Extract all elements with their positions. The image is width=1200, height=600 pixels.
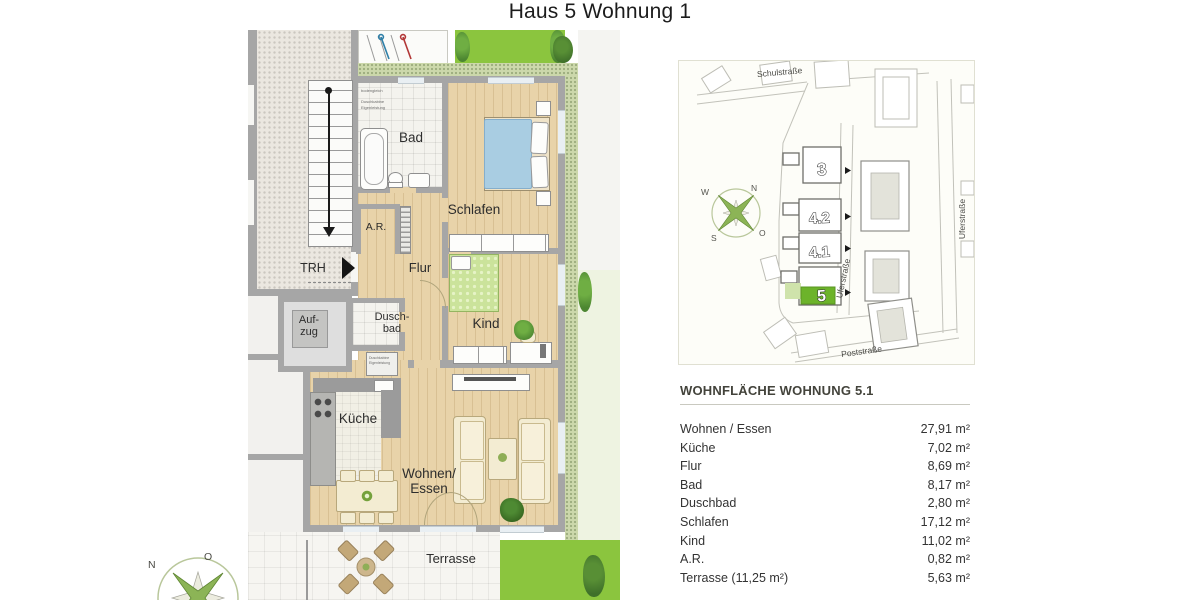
- label-line: Auf-: [299, 314, 319, 326]
- site-map: 3 4.2 4.1 5 Schulstraße Uferstraße Ufers…: [678, 60, 975, 365]
- entry-dashed-line: [308, 282, 351, 283]
- table-row: Bad 8,17 m²: [680, 478, 970, 497]
- label-line: zug: [300, 326, 318, 338]
- room-label-bad: Bad: [391, 130, 431, 145]
- bad-notes: bodengleich Duschkabine Eigenleistung: [361, 88, 397, 110]
- bush-icon: [553, 36, 573, 63]
- note-text: Duschkabine: [361, 99, 384, 104]
- room-label-kueche: Küche: [332, 411, 384, 426]
- pillow: [451, 256, 471, 270]
- row-value: 5,63 m²: [928, 571, 970, 590]
- compass-rose-icon: N O: [140, 548, 250, 600]
- gravel-path-top: [358, 63, 578, 76]
- row-label: Flur: [680, 459, 702, 478]
- stair-direction-arrow: [328, 92, 330, 228]
- row-label: Wohnen / Essen: [680, 422, 772, 441]
- compass-letter-w: W: [701, 187, 709, 197]
- hallway-shelf: [400, 206, 411, 254]
- table-row: A.R. 0,82 m²: [680, 552, 970, 571]
- bathtub: [360, 128, 388, 190]
- row-label: A.R.: [680, 552, 704, 571]
- neighbor-door-gap: [248, 180, 254, 225]
- label-line: Dusch-: [375, 311, 410, 323]
- entrance-arrow-icon: [342, 257, 355, 279]
- building-number-42: 4.2: [809, 209, 831, 227]
- row-value: 8,69 m²: [928, 459, 970, 478]
- window: [558, 110, 565, 154]
- dining-chair: [378, 470, 394, 482]
- note-text: Duschkabine: [369, 356, 389, 360]
- site-map-drawing: 3 4.2 4.1 5 Schulstraße Uferstraße Ufers…: [679, 61, 974, 364]
- room-label-schlafen: Schlafen: [444, 202, 504, 217]
- plant-icon: [500, 498, 524, 522]
- street-label-uferstrasse-right: Uferstraße: [957, 199, 967, 239]
- area-table-header: WOHNFLÄCHE WOHNUNG 5.1: [680, 383, 970, 405]
- wall: [347, 345, 405, 351]
- brochure-page: Haus 5 Wohnung 1: [0, 0, 1200, 600]
- toilet-tank: [388, 182, 403, 188]
- coffee-table: [488, 438, 517, 480]
- computer-monitor: [540, 344, 546, 358]
- hedge-lawn-top: [455, 30, 565, 63]
- window: [558, 264, 565, 306]
- label-line: bad: [383, 323, 401, 335]
- dining-chair: [378, 512, 394, 524]
- row-label: Schlafen: [680, 515, 729, 534]
- row-label: Kind: [680, 534, 705, 553]
- wall: [356, 204, 400, 209]
- kitchen-counter-right: [381, 390, 401, 438]
- room-label-ar: A.R.: [357, 222, 395, 234]
- row-label: Bad: [680, 478, 702, 497]
- gravel-path-right: [565, 76, 578, 540]
- neighbor-door-gap: [248, 85, 254, 125]
- note-text: bodengleich: [361, 88, 383, 93]
- compass-letter-n: N: [751, 183, 757, 193]
- stair-arrow-origin-dot: [325, 87, 332, 94]
- floor-plan: Duschkabine Eigenleistung bodengleich Du…: [248, 30, 620, 600]
- note-text: Eigenleistung: [369, 361, 390, 365]
- bike-room: [358, 30, 448, 65]
- sink: [408, 173, 430, 188]
- bush-icon: [583, 555, 605, 597]
- building-number-41: 4.1: [809, 243, 831, 261]
- room-label-kind: Kind: [466, 316, 506, 331]
- tv: [464, 377, 516, 381]
- lawn-bottom-right: [500, 540, 578, 600]
- stair-arrow-head: [323, 227, 335, 237]
- compass-rose-icon: [712, 189, 760, 237]
- wardrobe: [453, 346, 507, 364]
- window: [488, 77, 534, 84]
- sofa: [518, 418, 551, 504]
- table-row: Flur 8,69 m²: [680, 459, 970, 478]
- wall: [248, 454, 303, 460]
- row-value: 27,91 m²: [921, 422, 970, 441]
- table-row: Duschbad 2,80 m²: [680, 496, 970, 515]
- row-value: 17,12 m²: [921, 515, 970, 534]
- room-label-terrasse: Terrasse: [420, 552, 482, 567]
- door-gap: [414, 360, 440, 368]
- pillow: [530, 156, 549, 189]
- compass-letter-s: S: [711, 233, 717, 243]
- nightstand: [536, 101, 551, 116]
- compass-letter-o: O: [759, 228, 766, 238]
- building-number-3: 3: [817, 160, 827, 179]
- dining-table: [336, 480, 398, 512]
- window: [500, 526, 544, 533]
- dining-chair: [340, 470, 356, 482]
- bed-blanket: [484, 119, 532, 189]
- label-line: Wohnen/: [402, 466, 456, 481]
- street-label-poststrasse: Poststraße: [841, 343, 883, 359]
- label-line: Essen: [410, 481, 448, 496]
- flower-centerpiece: [361, 490, 373, 502]
- room-label-wohnen: Wohnen/ Essen: [396, 466, 462, 496]
- dining-chair: [359, 512, 375, 524]
- page-title: Haus 5 Wohnung 1: [0, 0, 1200, 24]
- table-row: Kind 11,02 m²: [680, 534, 970, 553]
- compass-letter-o: O: [204, 551, 212, 563]
- duschbad-note-box: Duschkabine Eigenleistung: [366, 352, 398, 376]
- wall: [347, 298, 405, 303]
- plant-icon: [514, 320, 534, 340]
- margin-strip-right-top: [578, 30, 620, 270]
- room-label-aufzug: Auf- zug: [280, 314, 338, 339]
- table-row: Schlafen 17,12 m²: [680, 515, 970, 534]
- row-value: 2,80 m²: [928, 496, 970, 515]
- bush-icon: [578, 272, 592, 312]
- nightstand: [536, 191, 551, 206]
- window: [558, 422, 565, 474]
- note-text: Eigenleistung: [361, 105, 385, 110]
- wardrobe: [449, 234, 549, 252]
- row-label: Duschbad: [680, 496, 736, 515]
- wall: [248, 30, 257, 296]
- lawn-patch: [785, 283, 801, 299]
- dining-chair: [359, 470, 375, 482]
- row-value: 8,17 m²: [928, 478, 970, 497]
- terrace-divider: [306, 540, 308, 600]
- room-label-flur: Flur: [398, 261, 442, 276]
- row-label: Terrasse (11,25 m²): [680, 571, 788, 590]
- row-value: 7,02 m²: [928, 441, 970, 460]
- table-row: Terrasse (11,25 m²) 5,63 m²: [680, 571, 970, 590]
- table-row: Küche 7,02 m²: [680, 441, 970, 460]
- bush-icon: [455, 32, 470, 62]
- table-row: Wohnen / Essen 27,91 m²: [680, 422, 970, 441]
- wall: [248, 289, 358, 296]
- stove: [312, 396, 334, 422]
- wall: [303, 360, 310, 532]
- area-table-rows: Wohnen / Essen 27,91 m² Küche 7,02 m² Fl…: [680, 422, 970, 589]
- dining-chair: [340, 512, 356, 524]
- staircase: [308, 80, 353, 247]
- window: [398, 77, 424, 84]
- pillow: [530, 122, 549, 155]
- compass-letter-n: N: [148, 559, 156, 571]
- room-label-duschbad: Dusch- bad: [364, 311, 420, 336]
- row-value: 0,82 m²: [928, 552, 970, 571]
- building-number-5: 5: [817, 288, 827, 305]
- area-table: WOHNFLÄCHE WOHNUNG 5.1 Wohnen / Essen 27…: [680, 383, 970, 589]
- room-label-trh: TRH: [288, 261, 338, 275]
- bicycle-icons: [359, 31, 445, 62]
- row-label: Küche: [680, 441, 715, 460]
- row-value: 11,02 m²: [922, 534, 970, 553]
- terrace-furniture: [334, 536, 398, 598]
